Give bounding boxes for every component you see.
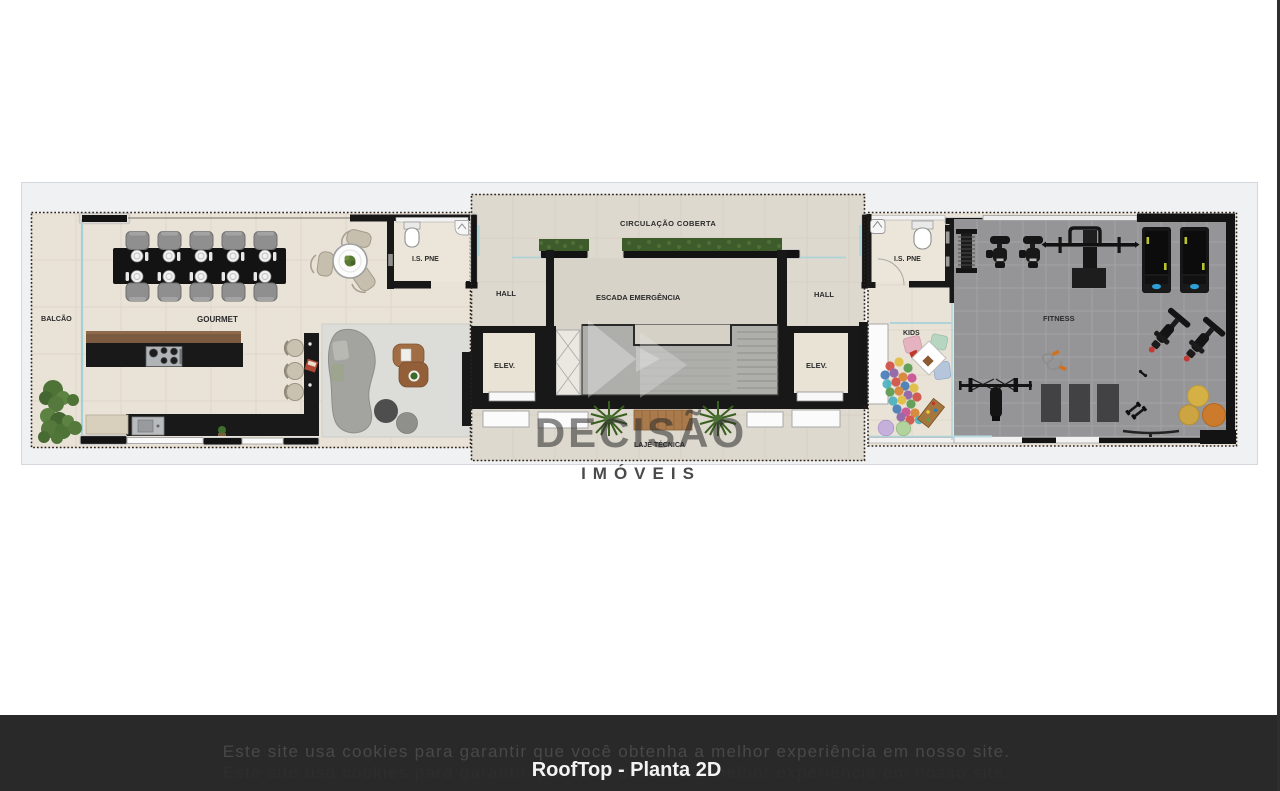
svg-text:GOURMET: GOURMET <box>197 315 238 324</box>
svg-text:ELEV.: ELEV. <box>806 361 827 370</box>
svg-text:FITNESS: FITNESS <box>1043 314 1075 323</box>
svg-text:BALCÃO: BALCÃO <box>41 314 72 323</box>
svg-text:CIRCULAÇÃO COBERTA: CIRCULAÇÃO COBERTA <box>620 219 716 228</box>
svg-text:HALL: HALL <box>814 290 834 299</box>
svg-text:I.S. PNE: I.S. PNE <box>894 256 921 263</box>
svg-text:I.S. PNE: I.S. PNE <box>412 256 439 263</box>
svg-text:DECISÃO: DECISÃO <box>535 409 747 456</box>
svg-text:IMÓVEIS: IMÓVEIS <box>581 464 701 483</box>
svg-text:HALL: HALL <box>496 289 516 298</box>
svg-text:ESCADA EMERGÊNCIA: ESCADA EMERGÊNCIA <box>596 293 681 302</box>
svg-text:ELEV.: ELEV. <box>494 361 515 370</box>
